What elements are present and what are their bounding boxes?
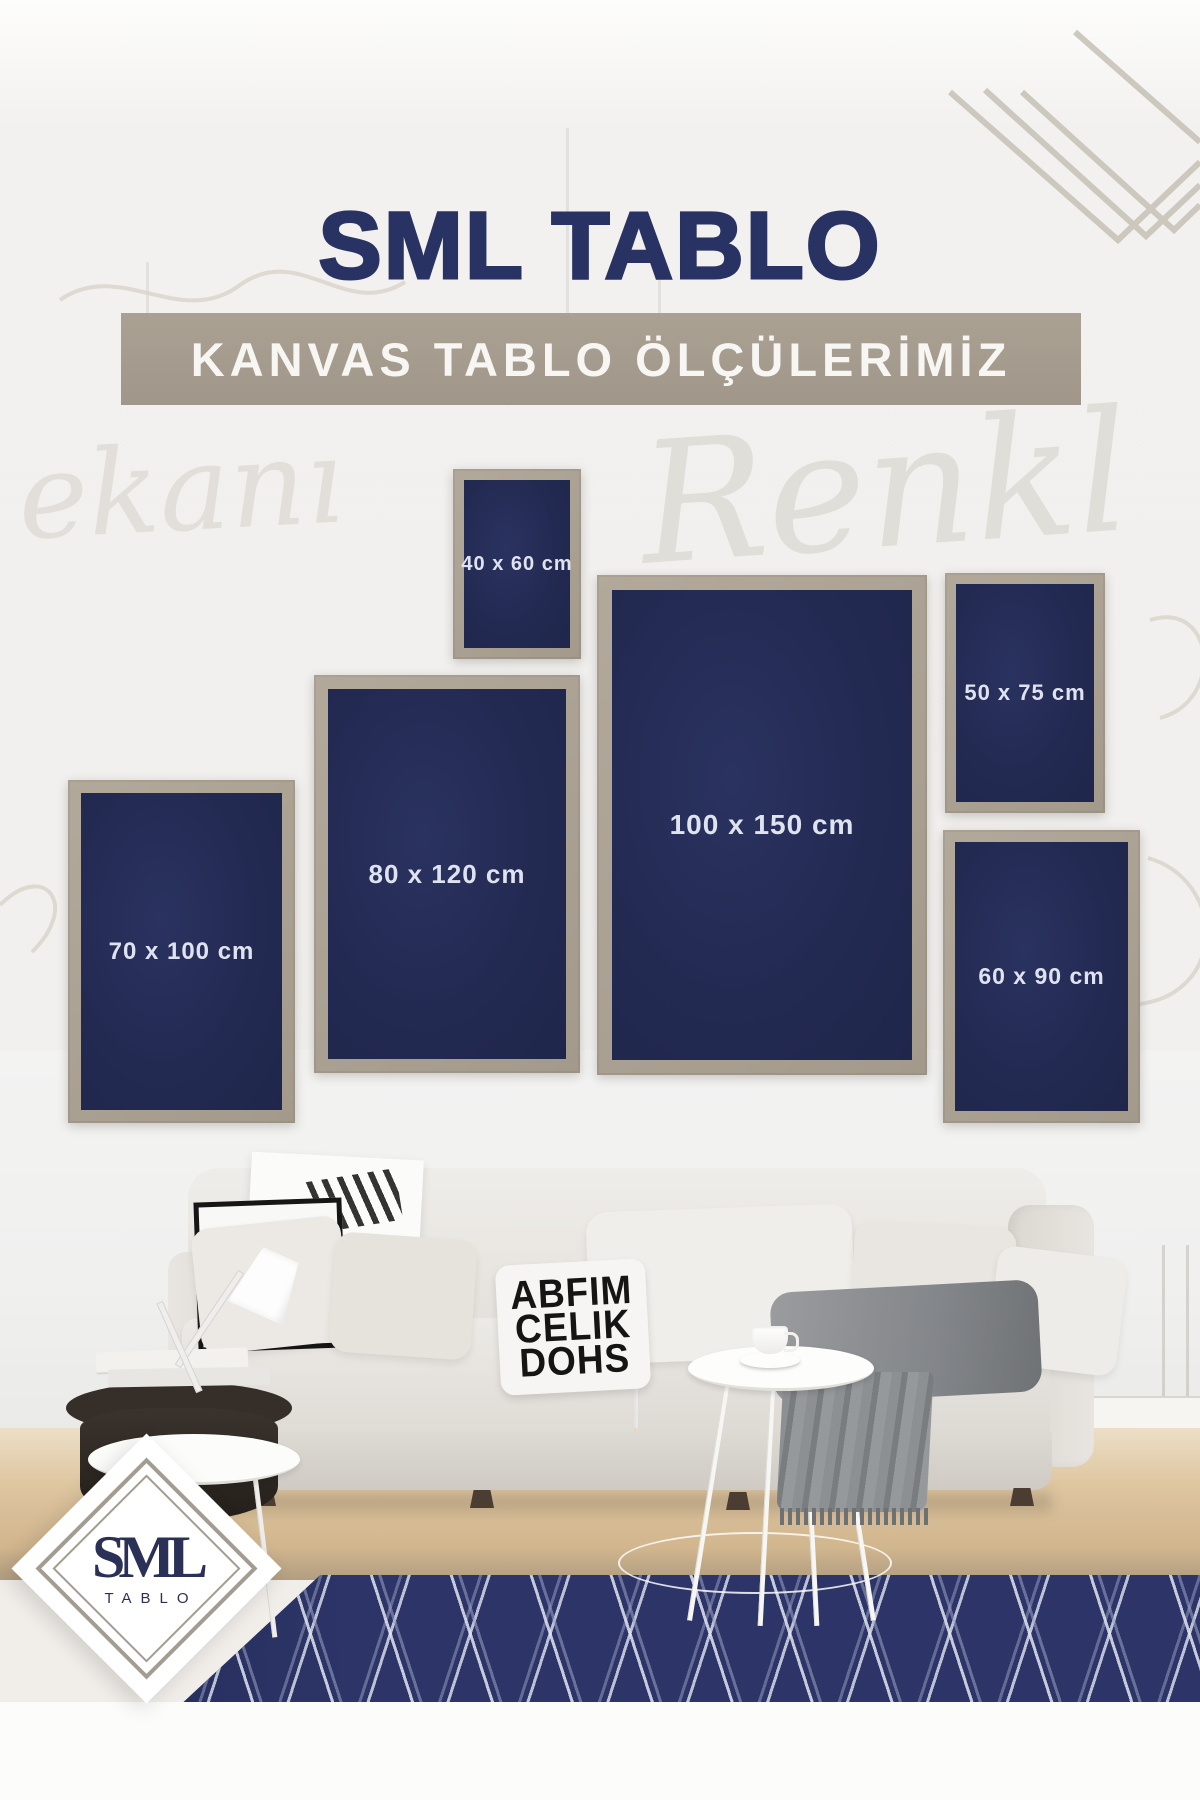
- canvas-frame-40x60: 40 x 60 cm: [453, 469, 581, 659]
- size-label-70x100: 70 x 100 cm: [109, 938, 255, 966]
- sofa-foot: [1010, 1488, 1034, 1506]
- coffee-cup: [752, 1326, 788, 1354]
- canvas-frame-60x90: 60 x 90 cm: [943, 830, 1140, 1123]
- canvas-60x90: 60 x 90 cm: [955, 842, 1128, 1111]
- canvas-50x75: 50 x 75 cm: [956, 584, 1094, 802]
- logo-wordmark: TABLO: [95, 1590, 197, 1607]
- canvas-frame-80x120: 80 x 120 cm: [314, 675, 580, 1073]
- canvas-frame-100x150: 100 x 150 cm: [597, 575, 927, 1075]
- size-label-40x60: 40 x 60 cm: [461, 553, 572, 576]
- size-label-60x90: 60 x 90 cm: [978, 963, 1104, 990]
- canvas-70x100: 70 x 100 cm: [81, 793, 282, 1110]
- canvas-100x150: 100 x 150 cm: [612, 590, 912, 1060]
- logo-content: SML TABLO: [51, 1473, 242, 1664]
- throw-fringe: [780, 1508, 930, 1525]
- canvas-frame-50x75: 50 x 75 cm: [945, 573, 1105, 813]
- canvas-frame-70x100: 70 x 100 cm: [68, 780, 295, 1123]
- sofa-foot: [470, 1490, 494, 1508]
- size-label-100x150: 100 x 150 cm: [670, 809, 855, 841]
- floor-ring-highlight: [618, 1532, 892, 1594]
- size-label-80x120: 80 x 120 cm: [368, 859, 525, 890]
- subtitle-text: KANVAS TABLO ÖLÇÜLERİMİZ: [191, 332, 1012, 387]
- bottom-margin: [0, 1702, 1200, 1800]
- poster: Renkl ekanı SML TABLO KANVAS TABLO ÖLÇÜL…: [0, 0, 1200, 1800]
- pillow-letters-row: DOHS: [518, 1340, 631, 1383]
- subtitle-banner: KANVAS TABLO ÖLÇÜLERİMİZ: [121, 313, 1081, 405]
- typography-pillow: ABFIM CELIK DOHS: [495, 1258, 652, 1396]
- page-title: SML TABLO: [0, 192, 1200, 301]
- canvas-80x120: 80 x 120 cm: [328, 689, 566, 1059]
- logo-monogram: SML: [92, 1530, 201, 1584]
- background-script-word-ekani: ekanı: [15, 412, 347, 567]
- brand-logo: SML TABLO: [11, 1433, 281, 1703]
- size-label-50x75: 50 x 75 cm: [964, 680, 1085, 706]
- gray-throw-drape: [776, 1372, 933, 1512]
- throw-pillow: [328, 1231, 478, 1361]
- canvas-40x60: 40 x 60 cm: [464, 480, 570, 648]
- wall-trim-line: [1162, 1245, 1165, 1397]
- wall-trim-line: [1186, 1245, 1189, 1397]
- saucer: [740, 1352, 800, 1368]
- sofa-foot: [726, 1492, 750, 1510]
- background-script-word-renkl: Renkl: [634, 373, 1136, 603]
- cup-handle-icon: [784, 1332, 799, 1352]
